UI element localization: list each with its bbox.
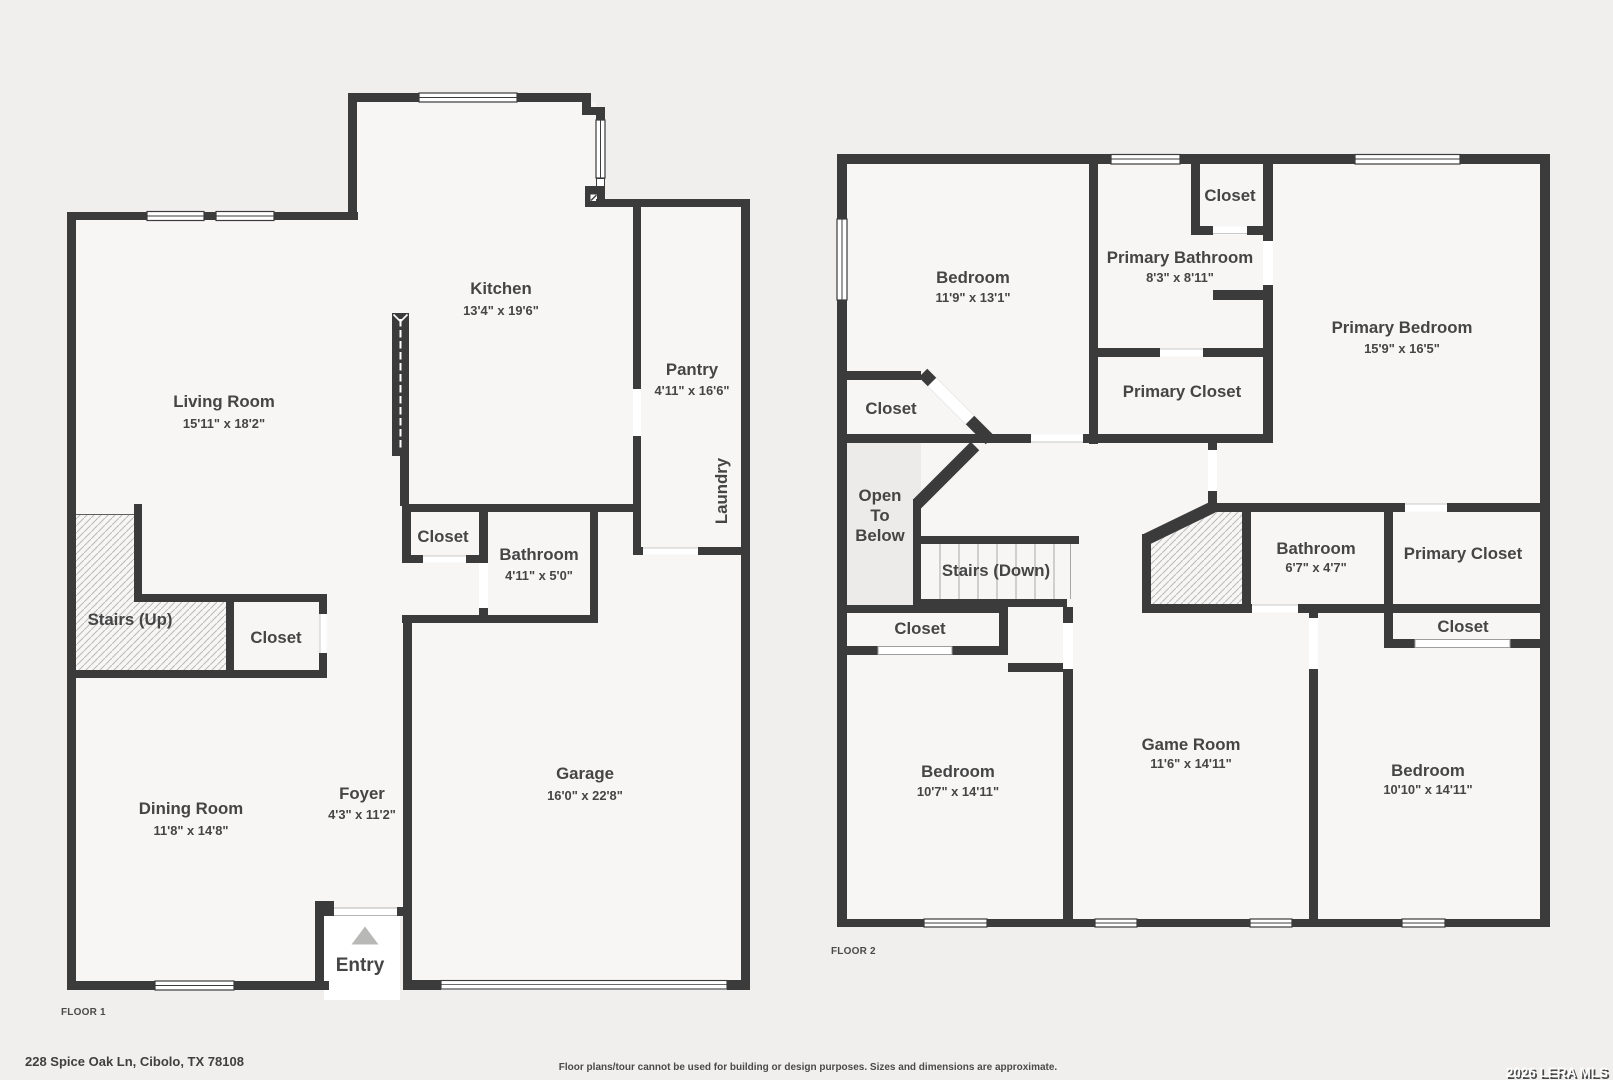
- svg-text:2026 LERA MLS: 2026 LERA MLS: [1506, 1065, 1608, 1080]
- svg-text:FLOOR 1: FLOOR 1: [61, 1007, 106, 1018]
- svg-text:11'6" x 14'11": 11'6" x 14'11": [1150, 756, 1231, 771]
- svg-text:Primary Closet: Primary Closet: [1123, 382, 1242, 401]
- svg-text:Closet: Closet: [1437, 617, 1489, 636]
- svg-text:6'7" x 4'7": 6'7" x 4'7": [1285, 560, 1346, 575]
- svg-text:Living Room: Living Room: [173, 392, 275, 411]
- svg-text:15'9" x 16'5": 15'9" x 16'5": [1364, 341, 1440, 356]
- svg-text:16'0" x 22'8": 16'0" x 22'8": [547, 788, 623, 803]
- svg-text:Foyer: Foyer: [339, 784, 385, 803]
- svg-text:15'11" x 18'2": 15'11" x 18'2": [183, 416, 265, 431]
- svg-text:4'11" x 16'6": 4'11" x 16'6": [655, 383, 730, 398]
- svg-text:Closet: Closet: [417, 527, 469, 546]
- svg-text:Entry: Entry: [336, 955, 385, 976]
- svg-text:Primary Bedroom: Primary Bedroom: [1332, 318, 1473, 337]
- svg-text:Kitchen: Kitchen: [470, 279, 532, 298]
- svg-text:Open: Open: [859, 486, 902, 505]
- svg-text:Below: Below: [855, 526, 905, 545]
- svg-text:Stairs (Down): Stairs (Down): [942, 561, 1050, 580]
- svg-text:Closet: Closet: [1204, 186, 1256, 205]
- svg-text:8'3" x 8'11": 8'3" x 8'11": [1146, 270, 1214, 285]
- svg-text:Bathroom: Bathroom: [1276, 539, 1355, 558]
- svg-text:Laundry: Laundry: [712, 457, 731, 524]
- svg-text:Bedroom: Bedroom: [1391, 761, 1465, 780]
- svg-text:4'3" x 11'2": 4'3" x 11'2": [328, 807, 396, 822]
- svg-text:10'7" x 14'11": 10'7" x 14'11": [917, 784, 999, 799]
- svg-text:4'11" x 5'0": 4'11" x 5'0": [505, 568, 573, 583]
- svg-text:10'10" x 14'11": 10'10" x 14'11": [1383, 782, 1472, 797]
- svg-text:Dining Room: Dining Room: [139, 799, 243, 818]
- svg-text:Primary Bathroom: Primary Bathroom: [1107, 248, 1253, 267]
- svg-text:Stairs (Up): Stairs (Up): [88, 610, 173, 629]
- svg-text:11'8" x 14'8": 11'8" x 14'8": [154, 823, 229, 838]
- svg-text:Bathroom: Bathroom: [499, 545, 578, 564]
- svg-text:228 Spice Oak Ln, Cibolo, TX 7: 228 Spice Oak Ln, Cibolo, TX 78108: [25, 1054, 244, 1069]
- svg-text:FLOOR 2: FLOOR 2: [831, 946, 876, 957]
- svg-text:Primary Closet: Primary Closet: [1404, 544, 1523, 563]
- svg-text:Closet: Closet: [865, 399, 917, 418]
- svg-text:Game Room: Game Room: [1142, 735, 1241, 754]
- svg-text:Garage: Garage: [556, 764, 614, 783]
- svg-text:Bedroom: Bedroom: [921, 762, 995, 781]
- svg-text:13'4" x 19'6": 13'4" x 19'6": [463, 303, 539, 318]
- svg-text:11'9" x 13'1": 11'9" x 13'1": [936, 290, 1011, 305]
- svg-text:Bedroom: Bedroom: [936, 268, 1010, 287]
- svg-text:Floor plans/tour cannot be use: Floor plans/tour cannot be used for buil…: [559, 1062, 1058, 1073]
- svg-text:Closet: Closet: [250, 628, 302, 647]
- svg-text:Pantry: Pantry: [666, 360, 719, 379]
- svg-text:Closet: Closet: [894, 619, 946, 638]
- svg-text:To: To: [870, 506, 889, 525]
